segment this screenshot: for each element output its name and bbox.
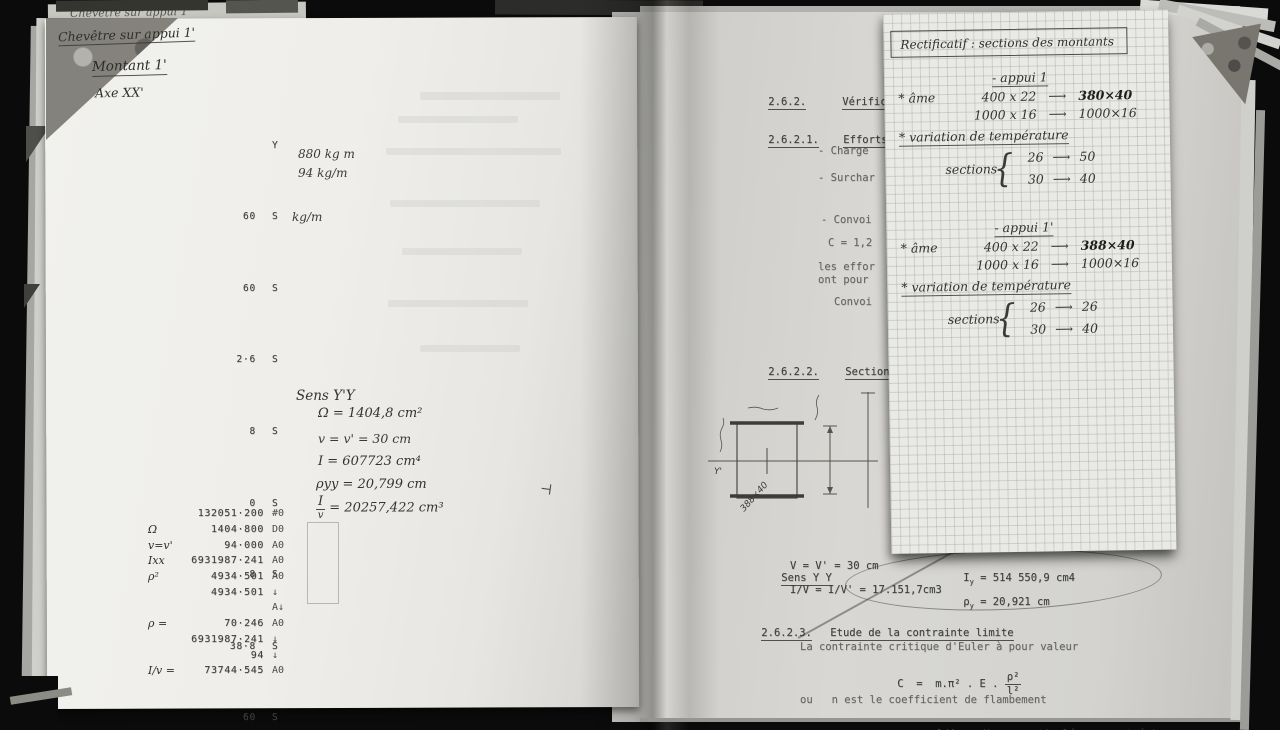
calc-prefix: ρ = <box>148 617 190 630</box>
number-row: 8 S <box>196 424 292 439</box>
center-gutter-shadow <box>580 0 720 730</box>
note-content: - appui 1 * âme 400 x 22 ⟶ 380×40 1000 x… <box>898 68 1164 342</box>
ghost-text-line <box>420 345 520 352</box>
ghost-text-line <box>398 116 518 123</box>
sens-yy-inertia: I = 607723 cm⁴ <box>318 454 421 469</box>
calc-value: 94·000 <box>190 540 264 551</box>
rectificatif-note: Rectificatif : sections des montants - a… <box>883 10 1176 554</box>
calc-row: ρ² 4934·501 A0 <box>148 569 306 585</box>
sections-row: sections { 26 ⟶ 50 30 ⟶ 40 <box>899 144 1162 192</box>
right-page-bottom-edge <box>640 718 1240 722</box>
number-row: 60 S <box>196 281 292 296</box>
line-convoi2: Convoi <box>834 296 872 308</box>
dim-to: 388×40 <box>1081 236 1151 252</box>
document-photo: Chevêtre sur appui 1' Chevêtre sur appui… <box>0 0 1280 730</box>
calc-flag: ↓ <box>272 634 306 645</box>
sections-label: sections <box>945 161 991 177</box>
dim-from: 1000 x 16 <box>959 256 1039 272</box>
arrow-glyph: ⟶ <box>1039 237 1081 253</box>
line-convoi: - Convoi <box>821 214 872 226</box>
sens-yy-v: v = v' = 30 cm <box>318 431 411 446</box>
pair-to: 50 <box>1079 148 1109 163</box>
ghost-text-line <box>390 200 540 207</box>
formula-fraction: ρ²l² <box>1005 672 1022 696</box>
sens-yy-hand-title: Sens Y'Y <box>296 388 355 404</box>
number-flag: Y <box>272 140 292 151</box>
fraction-numerator: I <box>316 495 325 510</box>
section-pair: 30 ⟶ 40 <box>1022 316 1112 339</box>
calc-flag: #0 <box>272 508 306 519</box>
ghost-text-line <box>386 148 561 155</box>
number-row: 60 S <box>196 710 292 725</box>
line-effort1: les effor <box>818 261 875 273</box>
axis-label: Axe XX' <box>95 85 144 101</box>
line-charge: - Charge <box>818 145 869 157</box>
calc-flag: ↓ <box>272 587 306 598</box>
calc-flag: A0 <box>272 555 306 566</box>
formula-lhs: C = m.π² . E . <box>897 678 1004 690</box>
iv-fraction: Iv <box>316 495 325 521</box>
ame-spacer <box>901 265 959 266</box>
section-pair: 30 ⟶ 40 <box>1020 166 1110 189</box>
calc-row: 132051·200 #0 <box>148 506 306 522</box>
calc-flag: A0 <box>272 618 306 629</box>
calc-prefix: Ω <box>148 523 190 536</box>
fraction-denominator: v <box>318 510 324 521</box>
section-2622-number: 2.6.2.2. <box>768 366 819 380</box>
note-block: - appui 1 * âme 400 x 22 ⟶ 380×40 1000 x… <box>898 68 1162 192</box>
appui-heading: - appui 1' <box>994 219 1053 237</box>
annotation-kgm: kg/m <box>292 210 322 224</box>
number-value: 60 <box>196 211 256 222</box>
faint-box-outline <box>307 522 339 604</box>
calc-row: A↓ <box>148 600 306 616</box>
calc-value: 73744·545 <box>190 665 264 676</box>
ghost-text-line <box>420 92 560 100</box>
brace-glyph: { <box>994 146 1014 190</box>
calc-value: 94 <box>190 650 264 661</box>
number-value: 2·6 <box>196 354 256 365</box>
calc-row: ρ = 70·246 A0 <box>148 616 306 632</box>
ame-row-2: 1000 x 16 ⟶ 1000×16 <box>898 103 1160 125</box>
arrow-glyph: ⟶ <box>1044 170 1080 186</box>
calc-flag: A0 <box>272 665 306 676</box>
sections-row: sections { 26 ⟶ 26 30 ⟶ 40 <box>901 294 1164 342</box>
sens-yy-rho: ρyy = 20,799 cm <box>316 477 427 492</box>
number-row: 2·6 S <box>196 353 292 368</box>
dark-binding-tab <box>226 0 298 13</box>
calc-value: 4934·501 <box>190 587 264 598</box>
section-2623-title-text: Etude de la contrainte limite <box>830 627 1013 641</box>
calc-value: 70·246 <box>190 618 264 629</box>
formula-numerator: ρ² <box>1005 672 1022 685</box>
ame-label: * âme <box>898 89 956 105</box>
number-value: 60 <box>196 283 256 294</box>
dim-to: 1000×16 <box>1081 254 1151 270</box>
brace-glyph: { <box>996 296 1016 340</box>
number-flag: S <box>272 283 292 294</box>
line-surchar: - Surchar <box>818 172 875 184</box>
note-title-box: Rectificatif : sections des montants <box>890 27 1127 58</box>
section-2621-number: 2.6.2.1. <box>768 134 819 148</box>
number-flag: S <box>272 211 292 222</box>
calc-row: 94 ↓ <box>148 647 306 663</box>
note-block: - appui 1' * âme 400 x 22 ⟶ 388×40 1000 … <box>900 218 1164 342</box>
section-pair: 26 ⟶ 26 <box>1022 294 1112 317</box>
number-flag: S <box>272 354 292 365</box>
number-flag: S <box>272 426 292 437</box>
euler-line: La contrainte critique d'Euler à pour va… <box>800 641 1078 653</box>
section-262: 2.6.2. <box>743 84 806 120</box>
section-2622-title: Sections <box>820 354 896 390</box>
dim-from: 400 x 22 <box>959 238 1039 254</box>
variation-heading: * variation de température <box>899 127 1069 147</box>
section-diagram: Y' 388×40 <box>700 390 885 525</box>
calc-row: 4934·501 ↓ <box>148 584 306 600</box>
pair-to: 40 <box>1080 170 1110 185</box>
calc-value: 1404·800 <box>190 524 264 535</box>
section-262-number: 2.6.2. <box>768 96 806 110</box>
annotation-880kgm: 880 kg m <box>298 147 355 161</box>
dim-from: 400 x 22 <box>956 88 1036 104</box>
calc-flag: ↓ <box>272 650 306 661</box>
dim-to: 1000×16 <box>1078 104 1148 120</box>
pen-tick-mark: ⊣ <box>539 481 553 499</box>
calc-row: I/v = 73744·545 A0 <box>148 663 306 679</box>
number-value: 8 <box>196 426 256 437</box>
calc-flag: A0 <box>272 540 306 551</box>
arrow-glyph: ⟶ <box>1039 255 1081 271</box>
appui-heading: - appui 1 <box>992 69 1048 87</box>
calc-flag: D0 <box>272 524 306 535</box>
dark-binding-bar-left <box>56 0 208 12</box>
arrow-glyph: ⟶ <box>1036 87 1078 103</box>
bottom-left-shadow <box>0 676 58 730</box>
calc-value: 6931987·241 <box>190 555 264 566</box>
pair-to: 40 <box>1082 320 1112 335</box>
number-value: 60 <box>196 712 256 723</box>
calc-flag: A0 <box>272 571 306 582</box>
calc-prefix: v=v' <box>148 539 190 552</box>
number-row: Y <box>196 138 292 153</box>
arrow-glyph: ⟶ <box>1043 148 1079 164</box>
sections-label: sections <box>948 311 994 327</box>
number-row: 60 S <box>196 210 292 225</box>
line-effort2: ont pour <box>818 274 869 286</box>
line-c12: C = 1,2 <box>828 237 872 249</box>
left-page <box>45 17 639 709</box>
arrow-glyph: ⟶ <box>1046 298 1082 314</box>
ghost-text-line <box>402 248 522 255</box>
sens-yy-omega: Ω = 1404,8 cm² <box>318 406 422 421</box>
note-title: Rectificatif : sections des montants <box>900 34 1114 51</box>
calc-prefix: Ixx <box>148 554 190 567</box>
calc-row: 6931987·241 ↓ <box>148 632 306 648</box>
section-pair: 26 ⟶ 50 <box>1019 144 1109 167</box>
annotation-94kgm: 94 kg/m <box>298 166 347 180</box>
sections-pairs: 26 ⟶ 26 30 ⟶ 40 <box>1022 294 1113 339</box>
calc-prefix: ρ² <box>148 570 190 583</box>
pair-from: 30 <box>1022 321 1046 336</box>
calc-row: Ixx 6931987·241 A0 <box>148 553 306 569</box>
ghost-text-line <box>388 300 528 307</box>
flambement-line: ou n est le coefficient de flambement <box>800 694 1047 706</box>
sections-pairs: 26 ⟶ 50 30 ⟶ 40 <box>1019 144 1110 189</box>
calc-value: 4934·501 <box>190 571 264 582</box>
pair-to: 26 <box>1082 298 1112 313</box>
arrow-glyph: ⟶ <box>1036 105 1078 121</box>
section-2622: 2.6.2.2. <box>743 354 819 390</box>
arrow-glyph: ⟶ <box>1046 320 1082 336</box>
diagram-axis-label: Y' <box>714 467 722 477</box>
calc-value: 6931987·241 <box>190 634 264 645</box>
number-flag: S <box>272 712 292 723</box>
calc-block: 132051·200 #0 Ω 1404·800 D0 v=v' 94·000 … <box>148 506 306 679</box>
left-page-title: Montant 1' <box>92 57 167 75</box>
variation-heading: * variation de température <box>901 277 1071 297</box>
ame-row-2: 1000 x 16 ⟶ 1000×16 <box>901 253 1163 275</box>
pair-from: 26 <box>1019 149 1043 164</box>
calc-prefix: I/v = <box>148 664 190 677</box>
sens-yy-iv: Iv = 20257,422 cm³ <box>316 495 444 521</box>
ame-spacer <box>899 115 957 116</box>
ame-label: * âme <box>901 239 959 255</box>
calc-row: v=v' 94·000 A0 <box>148 537 306 553</box>
pair-from: 26 <box>1022 299 1046 314</box>
pair-from: 30 <box>1020 171 1044 186</box>
left-page-title-text: Montant 1' <box>92 57 167 77</box>
section-2621: 2.6.2.1. <box>743 122 819 158</box>
iv-value: = 20257,422 cm³ <box>329 501 443 516</box>
dim-to: 380×40 <box>1078 86 1148 102</box>
calc-flag: A↓ <box>272 602 306 613</box>
calc-value: 132051·200 <box>190 508 264 519</box>
calc-row: Ω 1404·800 D0 <box>148 522 306 538</box>
dim-from: 1000 x 16 <box>956 106 1036 122</box>
